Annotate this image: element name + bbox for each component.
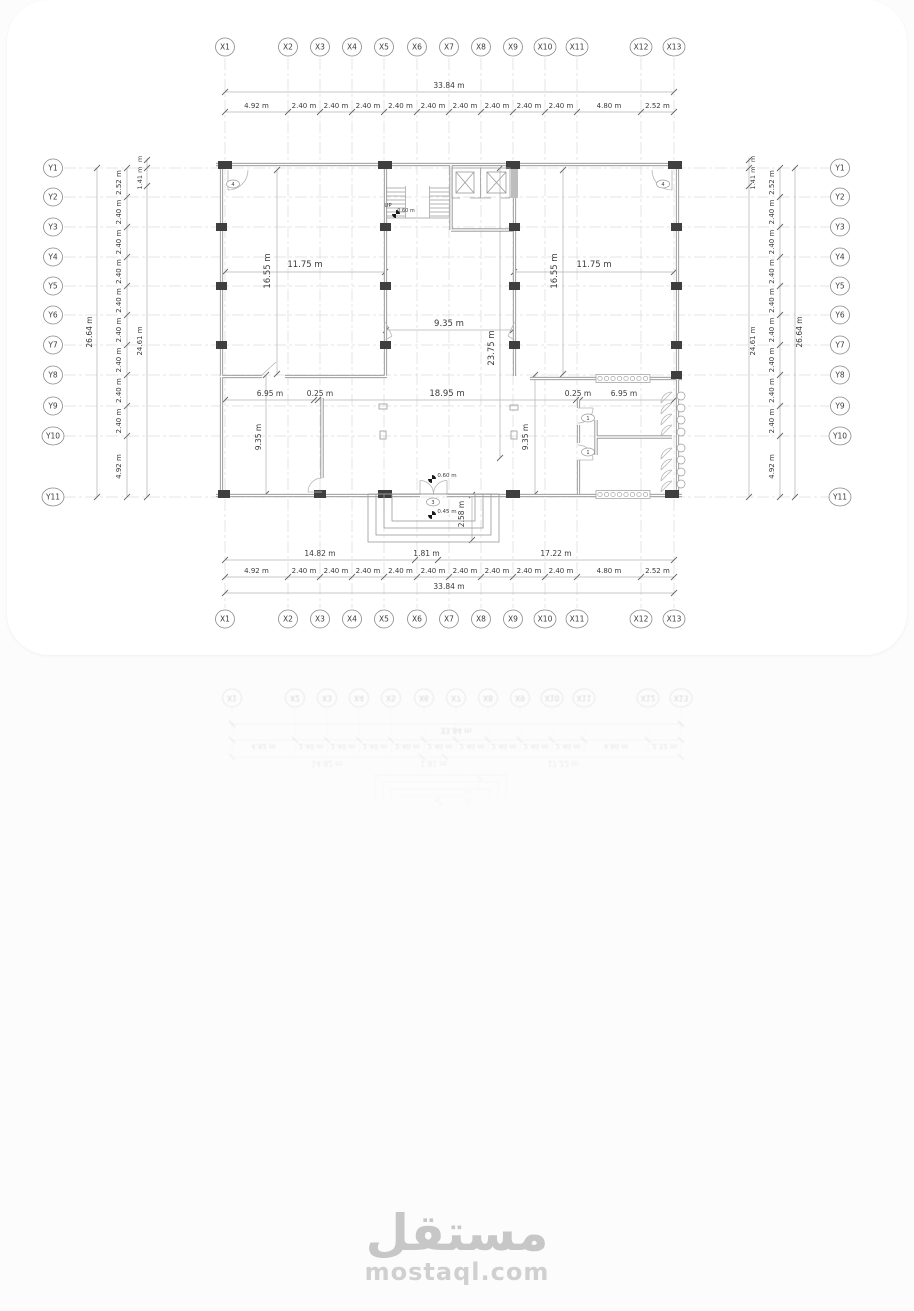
fixture-tag (677, 468, 685, 476)
label-up: UP (384, 203, 392, 209)
dim-x-segment: 2.40 m (292, 567, 317, 575)
dim-x-segment: 2.40 m (356, 102, 381, 110)
grid-bubble-label: X2 (283, 615, 293, 624)
dim-x-segment: 2.40 m (517, 567, 542, 575)
fixture-tag (677, 480, 685, 488)
dim-y-segment: 2.40 m (768, 409, 776, 434)
grid-bubble-x4: X4 (343, 38, 362, 56)
dim-y-inner: 1.41 m (749, 167, 757, 190)
column (671, 223, 682, 231)
grid-bubble-label: Y6 (47, 311, 58, 320)
grid-bubble-y4: Y4 (831, 248, 850, 266)
dim-x-segment: 2.40 m (549, 567, 574, 575)
dim-y-segment: 2.40 m (115, 409, 123, 434)
hatched-wall (511, 166, 518, 198)
dimension-annotations: 33.84 m4.92 m2.40 m2.40 m2.40 m2.40 m2.4… (85, 81, 804, 596)
dim-y-inner: m (749, 156, 757, 162)
dim-y-segment: 4.92 m (768, 454, 776, 479)
grid-bubble-label: X8 (476, 615, 486, 624)
label-hall-h: 23.75 m (487, 330, 497, 365)
dim-x-segment: 2.40 m (453, 567, 478, 575)
column (668, 161, 682, 169)
grid-bubble-label: Y11 (45, 493, 60, 502)
dim-x-segment: 2.40 m (292, 102, 317, 110)
grid-bubble-label: Y7 (834, 341, 845, 350)
label-ll-h: 9.35 m (254, 424, 263, 450)
dim-x-segment: 2.40 m (549, 102, 574, 110)
dim-y-inner: 24.61 m (749, 326, 757, 355)
grid-bubble-y9: Y9 (831, 397, 850, 415)
column (380, 223, 391, 231)
grid-bubble-x9: X9 (504, 610, 523, 628)
building-architecture (216, 161, 685, 542)
label-lvl-b: 0.45 m (437, 509, 456, 515)
dim-x-sub: 17.22 m (540, 549, 571, 558)
grid-bubble-y1: Y1 (44, 159, 63, 177)
grid-bubble-y11: Y11 (829, 488, 851, 506)
svg-text:X6: X6 (419, 693, 429, 702)
dim-x-sub: 14.82 m (304, 549, 335, 558)
grid-bubble-label: Y5 (834, 282, 845, 291)
toilet-stalls (661, 392, 685, 492)
dim-y-segment: 2.40 m (115, 200, 123, 225)
dim-x-sub: 1.81 m (413, 549, 439, 558)
grid-bubble-label: X4 (347, 43, 357, 52)
dim-y-segment: 2.40 m (768, 259, 776, 284)
column (380, 282, 391, 290)
label-left-room-h: 16.55 m (263, 253, 273, 288)
label-right-room-h: 16.55 m (550, 253, 560, 288)
dim-y-segment: 2.40 m (115, 259, 123, 284)
grid-bubble-label: X10 (538, 43, 553, 52)
dim-y-segment: 2.52 m (768, 170, 776, 195)
reflection: 33.84 m4.92 m2.40 m2.40 m2.40 m2.40 m2.4… (7, 662, 907, 830)
dim-x-segment: 2.40 m (485, 567, 510, 575)
dim-y-segment: 2.40 m (768, 378, 776, 403)
svg-text:Y11: Y11 (52, 815, 67, 824)
grid-bubble-label: Y1 (47, 164, 58, 173)
grid-bubble-label: Y8 (834, 371, 845, 380)
tag-door-right: 4 (657, 180, 670, 188)
svg-text:33.84 m: 33.84 m (440, 726, 471, 735)
grid-bubble-y3: Y3 (44, 218, 63, 236)
label-lr-a: 0.25 m (565, 389, 591, 398)
grid-bubble-label: X2 (283, 43, 293, 52)
svg-text:X11: X11 (577, 693, 592, 702)
dim-y-total-right: 26.64 m (795, 316, 804, 347)
tag-text: 1 (586, 416, 589, 422)
grid-bubble-y4: Y4 (44, 248, 63, 266)
dim-y-segment: 2.40 m (115, 378, 123, 403)
grid-bubble-y2: Y2 (44, 188, 63, 206)
svg-text:X8: X8 (483, 693, 493, 702)
column (378, 161, 392, 169)
grid-bubble-y5: Y5 (831, 277, 850, 295)
grid-bubble-y10: Y10 (829, 427, 851, 445)
grid-bubble-label: X3 (315, 615, 325, 624)
dim-x-segment: 2.40 m (485, 102, 510, 110)
grid-bubble-label: Y9 (834, 402, 845, 411)
column (671, 341, 682, 349)
grid-bubble-label: X12 (634, 615, 649, 624)
svg-text:2.40 m: 2.40 m (492, 742, 517, 750)
spot-elevation-markers (392, 210, 436, 519)
grid-bubble-y6: Y6 (44, 306, 63, 324)
grid-bubble-x11: X11 (566, 38, 588, 56)
tag-text: 4 (661, 182, 664, 188)
grid-bubble-label: X7 (444, 615, 454, 624)
column (218, 161, 232, 169)
svg-text:X2: X2 (290, 693, 300, 702)
dim-x-total-top: 33.84 m (433, 81, 464, 90)
grid-bubble-x12: X12 (630, 38, 652, 56)
dim-y-segment: 2.40 m (768, 288, 776, 313)
column (216, 341, 227, 349)
column (665, 490, 679, 498)
grid-bubble-label: X1 (220, 43, 230, 52)
grid-bubble-x5: X5 (375, 610, 394, 628)
dim-x-segment: 2.40 m (421, 102, 446, 110)
grid-bubble-label: Y1 (834, 164, 845, 173)
dim-x-segment: 4.80 m (597, 102, 622, 110)
grid-bubble-x12: X12 (630, 610, 652, 628)
staircase (386, 186, 449, 218)
grid-bubble-x2: X2 (279, 610, 298, 628)
watermark-domain: mostaql.com (0, 1258, 914, 1286)
grid-bubble-label: X6 (412, 615, 422, 624)
dim-y-inner: 1.41 m (136, 167, 144, 190)
column (380, 341, 391, 349)
grid-bubble-y8: Y8 (831, 366, 850, 384)
svg-text:2.40 m: 2.40 m (331, 742, 356, 750)
grid-bubble-y1: Y1 (831, 159, 850, 177)
grid-bubble-label: X11 (570, 615, 585, 624)
grid-bubble-label: X3 (315, 43, 325, 52)
grid-bubble-label: Y5 (47, 282, 58, 291)
grid-bubble-label: X5 (379, 615, 389, 624)
column (509, 223, 520, 231)
label-lvl-a: 0.60 m (437, 473, 456, 479)
column (218, 490, 230, 498)
grid-bubble-y10: Y10 (42, 427, 64, 445)
column (506, 490, 520, 498)
grid-bubble-label: Y6 (834, 311, 845, 320)
grid-bubble-x13: X13 (663, 38, 685, 56)
grid-bubble-label: Y4 (834, 253, 845, 262)
dim-y-segment: 2.40 m (768, 200, 776, 225)
grid-bubble-x10: X10 (534, 610, 556, 628)
label-lower-w: 18.95 m (429, 389, 464, 399)
label-hall-w: 9.35 m (434, 319, 464, 329)
dim-y-total-left: 26.64 m (85, 316, 94, 347)
column (671, 371, 682, 379)
tag-wc1: 1 (582, 414, 595, 422)
watermark: مستقل mostaql.com (0, 1208, 914, 1286)
grid-bubble-label: X1 (220, 615, 230, 624)
column (509, 282, 520, 290)
dim-x-total-bottom: 33.84 m (433, 582, 464, 591)
dim-y-segment: 2.40 m (115, 288, 123, 313)
dim-y-inner: m (136, 156, 144, 162)
grid-bubble-label: Y4 (47, 253, 58, 262)
fixture-tag (677, 444, 685, 452)
grid-bubble-y7: Y7 (44, 336, 63, 354)
dim-x-segment: 2.40 m (453, 102, 478, 110)
grid-bubble-y5: Y5 (44, 277, 63, 295)
page: 33.84 m4.92 m2.40 m2.40 m2.40 m2.40 m2.4… (0, 0, 914, 1311)
fixture-tag (677, 456, 685, 464)
svg-text:X4: X4 (354, 693, 364, 702)
svg-text:1.81 m: 1.81 m (420, 759, 446, 768)
grid-bubble-label: X7 (444, 43, 454, 52)
grid-bubble-label: X13 (667, 43, 682, 52)
svg-text:X1: X1 (227, 693, 237, 702)
dim-y-inner: 24.61 m (136, 326, 144, 355)
fixture-tag (677, 428, 685, 436)
grid-bubble-y9: Y9 (44, 397, 63, 415)
grid-bubble-x8: X8 (472, 610, 491, 628)
dim-x-segment: 2.40 m (356, 567, 381, 575)
grid-bubble-label: Y3 (834, 223, 845, 232)
dim-y-segment: 2.40 m (115, 318, 123, 343)
grid-bubble-y7: Y7 (831, 336, 850, 354)
dim-x-segment: 2.40 m (388, 567, 413, 575)
label-lr-b: 6.95 m (611, 389, 637, 398)
dim-y-segment: 2.40 m (768, 348, 776, 373)
grid-bubble-label: Y10 (45, 432, 60, 441)
grid-bubble-label: X12 (634, 43, 649, 52)
tag-text: 3 (431, 500, 434, 506)
column (216, 223, 227, 231)
watermark-arabic-logo: مستقل (0, 1208, 914, 1258)
grid-bubble-x7: X7 (440, 610, 459, 628)
grid-bubble-y11: Y11 (42, 488, 64, 506)
grid-bubble-label: X4 (347, 615, 357, 624)
grid-bubble-x7: X7 (440, 38, 459, 56)
dim-x-segment: 4.80 m (597, 567, 622, 575)
dim-y-segment: 2.40 m (115, 230, 123, 255)
grid-bubble-label: Y2 (834, 193, 845, 202)
svg-text:2.40 m: 2.40 m (299, 742, 324, 750)
tag-text: 1 (586, 450, 589, 456)
grid-bubbles: X1X1X2X2X3X3X4X4X5X5X6X6X7X7X8X8X9X9X10X… (42, 38, 851, 628)
svg-text:X3: X3 (322, 693, 332, 702)
grid-bubble-label: Y2 (47, 193, 58, 202)
floor-plan-canvas: 33.84 m4.92 m2.40 m2.40 m2.40 m2.40 m2.4… (7, 0, 907, 655)
grid-bubble-label: Y11 (832, 493, 847, 502)
tag-door-left: 4 (227, 180, 240, 188)
label-right-room-w: 11.75 m (576, 260, 611, 270)
grid-bubble-label: Y7 (47, 341, 58, 350)
svg-text:X12: X12 (641, 693, 656, 702)
svg-text:4.92 m: 4.92 m (251, 742, 276, 750)
grid-bubble-x11: X11 (566, 610, 588, 628)
svg-text:X9: X9 (515, 693, 525, 702)
grid-bubble-label: Y9 (47, 402, 58, 411)
label-lvl-c: 0.60 m (397, 208, 415, 214)
fixture-tag (677, 404, 685, 412)
svg-text:17.22 m: 17.22 m (547, 759, 578, 768)
grid-bubble-y3: Y3 (831, 218, 850, 236)
label-ll-a: 6.95 m (257, 389, 283, 398)
label-lr-h: 9.35 m (521, 424, 530, 450)
grid-bubble-label: X9 (508, 43, 518, 52)
grid-bubble-x9: X9 (504, 38, 523, 56)
fixture-tag (677, 392, 685, 400)
dim-x-segment: 2.40 m (324, 567, 349, 575)
svg-text:2.40 m: 2.40 m (556, 742, 581, 750)
dim-x-segment: 2.52 m (645, 102, 670, 110)
dim-y-segment: 2.40 m (768, 318, 776, 343)
column (671, 282, 682, 290)
grid-bubble-y6: Y6 (831, 306, 850, 324)
grid-bubble-label: Y8 (47, 371, 58, 380)
grid-bubble-x5: X5 (375, 38, 394, 56)
grid-bubble-x1: X1 (216, 38, 235, 56)
grid-bubble-label: Y10 (832, 432, 847, 441)
dim-x-segment: 2.40 m (324, 102, 349, 110)
svg-text:X5: X5 (386, 693, 396, 702)
grid-bubble-label: X6 (412, 43, 422, 52)
grid-bubble-x10: X10 (534, 38, 556, 56)
grid-bubble-x2: X2 (279, 38, 298, 56)
svg-text:14.82 m: 14.82 m (311, 759, 342, 768)
grid-bubble-label: X8 (476, 43, 486, 52)
column (509, 341, 520, 349)
tag-entry: 3 (427, 498, 440, 506)
dim-x-segment: 4.92 m (244, 102, 269, 110)
dimension-labels: 11.75 m16.55 m11.75 m16.55 m9.35 m23.75 … (227, 180, 670, 527)
svg-text:2.40 m: 2.40 m (524, 742, 549, 750)
label-ll-b: 0.25 m (307, 389, 333, 398)
dim-x-segment: 4.92 m (244, 567, 269, 575)
grid-bubble-x4: X4 (343, 610, 362, 628)
svg-text:Y11: Y11 (839, 815, 854, 824)
grid-bubble-label: X13 (667, 615, 682, 624)
svg-text:X10: X10 (545, 693, 560, 702)
label-entry-d: 2.58 m (457, 501, 466, 527)
column (314, 490, 326, 498)
svg-text:2.40 m: 2.40 m (428, 742, 453, 750)
grid-bubble-label: X5 (379, 43, 389, 52)
grid-bubble-y2: Y2 (831, 188, 850, 206)
dim-x-segment: 2.40 m (421, 567, 446, 575)
svg-text:X13: X13 (674, 693, 689, 702)
svg-text:2.40 m: 2.40 m (395, 742, 420, 750)
grid-bubble-x3: X3 (311, 610, 330, 628)
svg-text:2.58 m: 2.58 m (464, 790, 473, 816)
svg-text:2.40 m: 2.40 m (460, 742, 485, 750)
grid-bubble-x6: X6 (408, 610, 427, 628)
grid-bubble-y8: Y8 (44, 366, 63, 384)
grid-bubble-label: Y3 (47, 223, 58, 232)
dim-x-segment: 2.40 m (517, 102, 542, 110)
tag-wc2: 1 (582, 448, 595, 456)
grid-bubble-x13: X13 (663, 610, 685, 628)
grid-bubble-label: X10 (538, 615, 553, 624)
dim-x-segment: 2.52 m (645, 567, 670, 575)
tag-text: 4 (231, 182, 234, 188)
fixture-tag (677, 416, 685, 424)
floor-plan-drawing: 33.84 m4.92 m2.40 m2.40 m2.40 m2.40 m2.4… (7, 0, 907, 655)
column (216, 282, 227, 290)
dim-y-segment: 2.40 m (115, 348, 123, 373)
wall-fixtures (379, 404, 518, 439)
svg-text:3: 3 (438, 811, 441, 817)
label-left-room-w: 11.75 m (287, 260, 322, 270)
dim-x-segment: 2.40 m (388, 102, 413, 110)
svg-text:0.45 m: 0.45 m (444, 802, 463, 808)
grid-bubble-label: X11 (570, 43, 585, 52)
grid-bubble-x8: X8 (472, 38, 491, 56)
dim-y-segment: 2.40 m (768, 230, 776, 255)
svg-text:2.52 m: 2.52 m (652, 742, 677, 750)
grid-bubble-x3: X3 (311, 38, 330, 56)
svg-text:4.80 m: 4.80 m (604, 742, 629, 750)
grid-bubble-x1: X1 (216, 610, 235, 628)
grid-bubble-label: X9 (508, 615, 518, 624)
svg-text:X7: X7 (451, 693, 461, 702)
dim-y-segment: 2.52 m (115, 170, 123, 195)
dim-y-segment: 4.92 m (115, 454, 123, 479)
grid-bubble-x6: X6 (408, 38, 427, 56)
svg-text:2.40 m: 2.40 m (363, 742, 388, 750)
